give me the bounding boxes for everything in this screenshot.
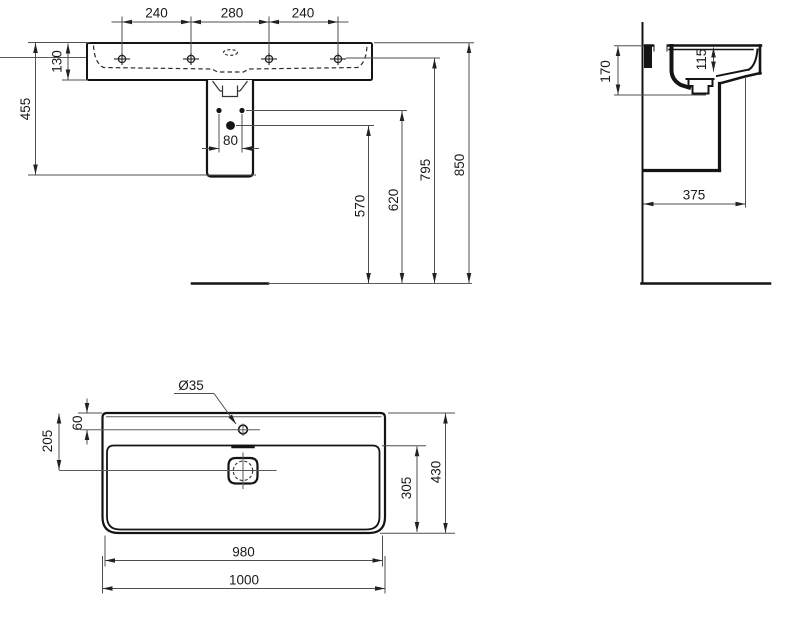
plan-view: Ø35 60 205 305 — [40, 378, 455, 594]
dim-205-label: 205 — [40, 430, 55, 453]
tap-hole-gap — [654, 44, 668, 48]
dim-total-width: 1000 — [103, 556, 386, 594]
drain-outlet-dot — [226, 121, 235, 130]
dim-height-795: 795 — [346, 58, 440, 283]
dim-240-right-label: 240 — [292, 6, 315, 21]
dim-diameter-label: Ø35 — [178, 378, 204, 393]
dim-280-label: 280 — [221, 6, 244, 21]
dim-1000-label: 1000 — [229, 573, 259, 588]
dim-60-label: 60 — [70, 415, 85, 430]
side-view: 115 170 375 — [598, 23, 770, 284]
dim-375-label: 375 — [683, 188, 706, 203]
bowl-front-inner — [749, 50, 758, 70]
dim-455-label: 455 — [18, 98, 33, 121]
technical-drawing-canvas: 240 280 240 80 130 — [0, 0, 795, 630]
dim-130-label: 130 — [50, 50, 65, 73]
dim-620-label: 620 — [386, 189, 401, 212]
dim-115-label: 115 — [694, 49, 709, 71]
fixing-hole-right — [239, 108, 244, 113]
dim-projection: 375 — [644, 78, 746, 208]
dim-305-label: 305 — [399, 477, 414, 500]
dim-inner-width: 980 — [105, 536, 383, 567]
drain-seat-detail — [687, 79, 714, 94]
bowl-bottom-inner — [717, 70, 749, 77]
front-view: 240 280 240 80 130 — [0, 6, 474, 284]
dim-bowl-depth: 115 — [694, 48, 714, 72]
dim-240-left-label: 240 — [145, 6, 168, 21]
dim-tap-hole-offset: 60 — [70, 399, 102, 445]
dim-430-label: 430 — [429, 461, 444, 484]
dim-570-label: 570 — [353, 195, 368, 218]
dim-795-label: 795 — [418, 159, 433, 182]
dim-drain-offset: 205 — [40, 414, 59, 471]
dim-height-620: 620 — [246, 111, 407, 284]
dim-980-label: 980 — [232, 545, 255, 560]
dim-850-label: 850 — [452, 154, 467, 177]
dim-170-label: 170 — [598, 60, 613, 83]
bowl-back-wall — [672, 46, 690, 88]
dim-bowl-front-depth: 305 — [382, 446, 426, 532]
basin-outline-front — [87, 43, 372, 80]
fixing-hole-left — [216, 108, 221, 113]
back-ledge-section — [644, 47, 652, 69]
dim-height-570: 570 — [236, 126, 374, 284]
dim-basin-height: 130 — [50, 44, 89, 81]
dim-80-label: 80 — [223, 133, 238, 148]
